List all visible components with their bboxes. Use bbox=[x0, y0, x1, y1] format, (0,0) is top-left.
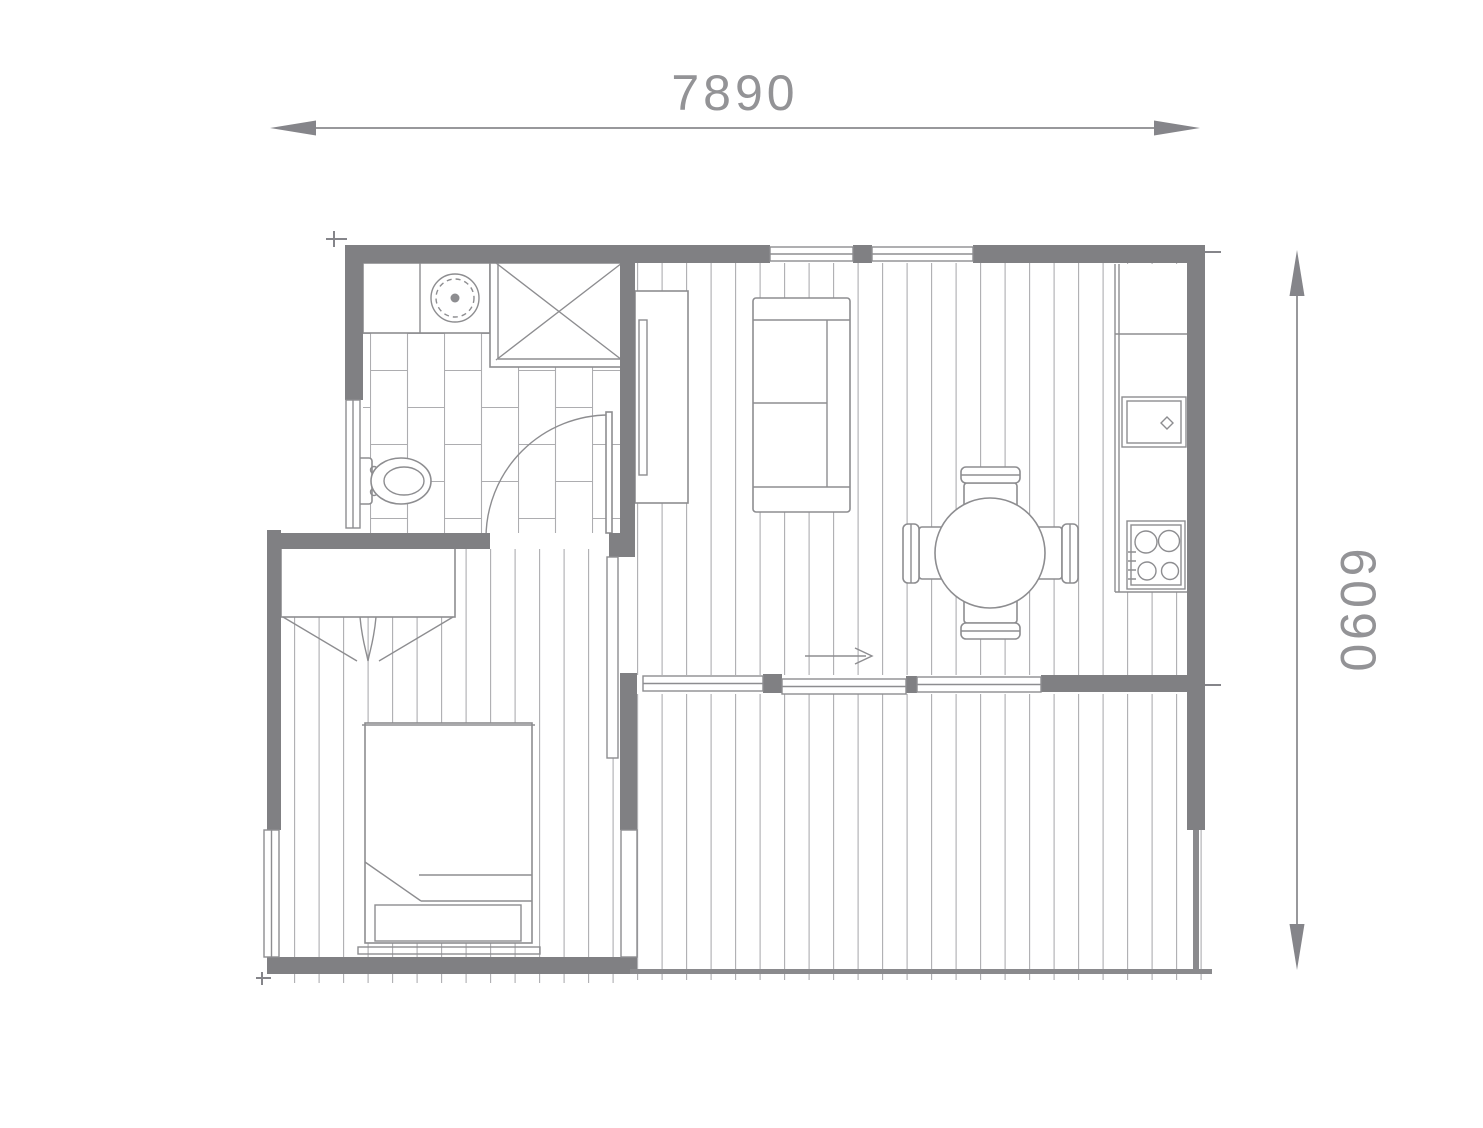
wall-bedroom-right bbox=[620, 673, 637, 830]
dimension-width: 7890 bbox=[270, 65, 1200, 136]
wall-bathroom-left bbox=[345, 245, 363, 400]
wall-bathroom-right bbox=[620, 263, 635, 533]
bathroom-counter bbox=[363, 263, 490, 333]
double-bed-icon bbox=[358, 723, 540, 954]
wall-top-left bbox=[345, 245, 770, 263]
arrow-right-icon bbox=[1154, 121, 1200, 136]
window-icon bbox=[872, 247, 973, 261]
dimension-height: 6090 bbox=[1290, 250, 1387, 970]
toilet-icon bbox=[350, 458, 431, 504]
wall-top-mullion bbox=[853, 245, 872, 263]
floor-plan-drawing: 7890 6090 bbox=[0, 0, 1483, 1128]
glass-wall-mullion bbox=[906, 676, 917, 693]
wall-bathroom-bottom bbox=[270, 533, 490, 549]
arrow-down-icon bbox=[1290, 924, 1305, 970]
wall-top-right bbox=[973, 245, 1205, 263]
wall-right bbox=[1187, 245, 1205, 830]
living-room-plank-floor bbox=[637, 263, 1187, 675]
glass-wall-mullion bbox=[763, 674, 782, 693]
kitchen bbox=[1115, 264, 1187, 592]
deck-edge-bottom bbox=[630, 969, 1212, 974]
glass-wall-start bbox=[623, 673, 637, 694]
height-dimension-label: 6090 bbox=[1330, 548, 1386, 675]
dining-table-icon bbox=[935, 498, 1045, 608]
sofa-icon bbox=[753, 298, 850, 512]
floor-plan-page: 7890 6090 bbox=[0, 0, 1483, 1128]
window-icon bbox=[346, 400, 360, 528]
wall-bedroom-bottom bbox=[267, 957, 637, 974]
hall-wardrobe-icon bbox=[635, 291, 688, 503]
deck-edge-right bbox=[1193, 830, 1199, 973]
width-dimension-label: 7890 bbox=[671, 65, 798, 121]
deck-plank-floor bbox=[637, 694, 1205, 980]
window-icon bbox=[770, 247, 853, 261]
sliding-glass-door-icon bbox=[643, 676, 1041, 694]
siding-tick-strip bbox=[272, 974, 635, 983]
shower-icon bbox=[490, 263, 622, 367]
wall-corner-block bbox=[609, 533, 635, 557]
arrow-up-icon bbox=[1290, 250, 1305, 296]
wall-bedroom-left bbox=[267, 530, 281, 830]
kitchen-counter-icon bbox=[1115, 264, 1187, 592]
glass-wall-end bbox=[1041, 675, 1054, 692]
window-icon bbox=[264, 830, 279, 957]
arrow-left-icon bbox=[270, 121, 316, 136]
wall-living-bottom bbox=[1054, 675, 1205, 692]
